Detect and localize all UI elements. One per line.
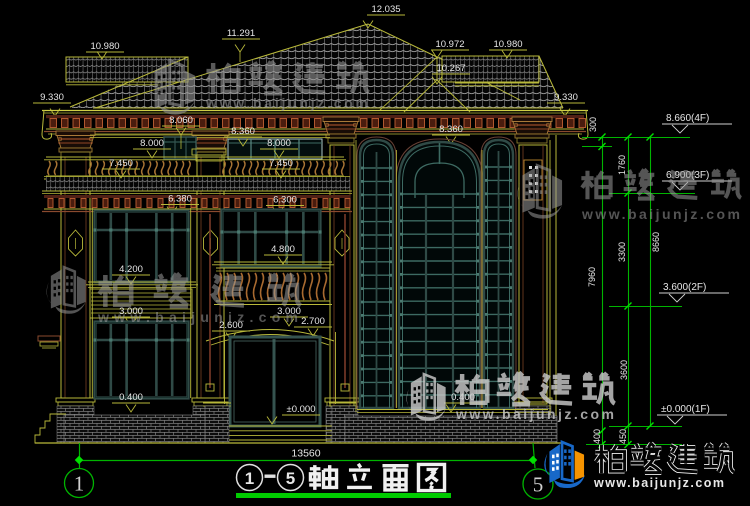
svg-text:7.450: 7.450 xyxy=(269,158,293,169)
svg-text:8.660(4F): 8.660(4F) xyxy=(666,113,709,124)
svg-text:8.000: 8.000 xyxy=(140,138,164,149)
svg-text:450: 450 xyxy=(618,429,628,444)
svg-text:5: 5 xyxy=(533,473,544,497)
svg-text:8.000: 8.000 xyxy=(267,138,291,149)
svg-text:11.291: 11.291 xyxy=(227,28,255,39)
svg-text:12.035: 12.035 xyxy=(371,4,400,15)
svg-text:2.700: 2.700 xyxy=(301,316,325,327)
svg-text:0.400: 0.400 xyxy=(119,392,143,403)
svg-text:6.380: 6.380 xyxy=(168,194,192,205)
svg-text:7960: 7960 xyxy=(587,267,597,287)
svg-text:8.360: 8.360 xyxy=(231,126,255,137)
svg-text:4.800: 4.800 xyxy=(271,244,295,255)
svg-text:6.300: 6.300 xyxy=(273,195,297,206)
svg-text:±0.000: ±0.000 xyxy=(287,404,316,415)
svg-text:1: 1 xyxy=(74,472,85,496)
svg-text:3300: 3300 xyxy=(617,242,627,262)
svg-text:1760: 1760 xyxy=(617,155,627,175)
svg-text:400: 400 xyxy=(592,429,602,444)
svg-text:300: 300 xyxy=(588,117,598,132)
svg-text:9.330: 9.330 xyxy=(554,92,578,103)
svg-text:5: 5 xyxy=(286,469,295,488)
svg-text:13560: 13560 xyxy=(291,448,320,460)
svg-text:3.600(2F): 3.600(2F) xyxy=(663,282,706,293)
svg-text:10.980: 10.980 xyxy=(493,39,522,50)
svg-text:10.267: 10.267 xyxy=(436,63,465,74)
svg-text:8.060: 8.060 xyxy=(169,115,193,126)
svg-text:4.200: 4.200 xyxy=(119,264,143,275)
svg-text:±0.000(1F): ±0.000(1F) xyxy=(661,404,710,415)
svg-text:7.450: 7.450 xyxy=(109,158,133,169)
svg-text:9.330: 9.330 xyxy=(40,92,64,103)
svg-text:3600: 3600 xyxy=(619,360,629,380)
svg-text:8.360: 8.360 xyxy=(439,124,463,135)
svg-text:8660: 8660 xyxy=(651,232,661,252)
svg-text:10.972: 10.972 xyxy=(435,39,464,50)
svg-text:1: 1 xyxy=(245,469,254,488)
svg-text:10.980: 10.980 xyxy=(90,41,119,52)
